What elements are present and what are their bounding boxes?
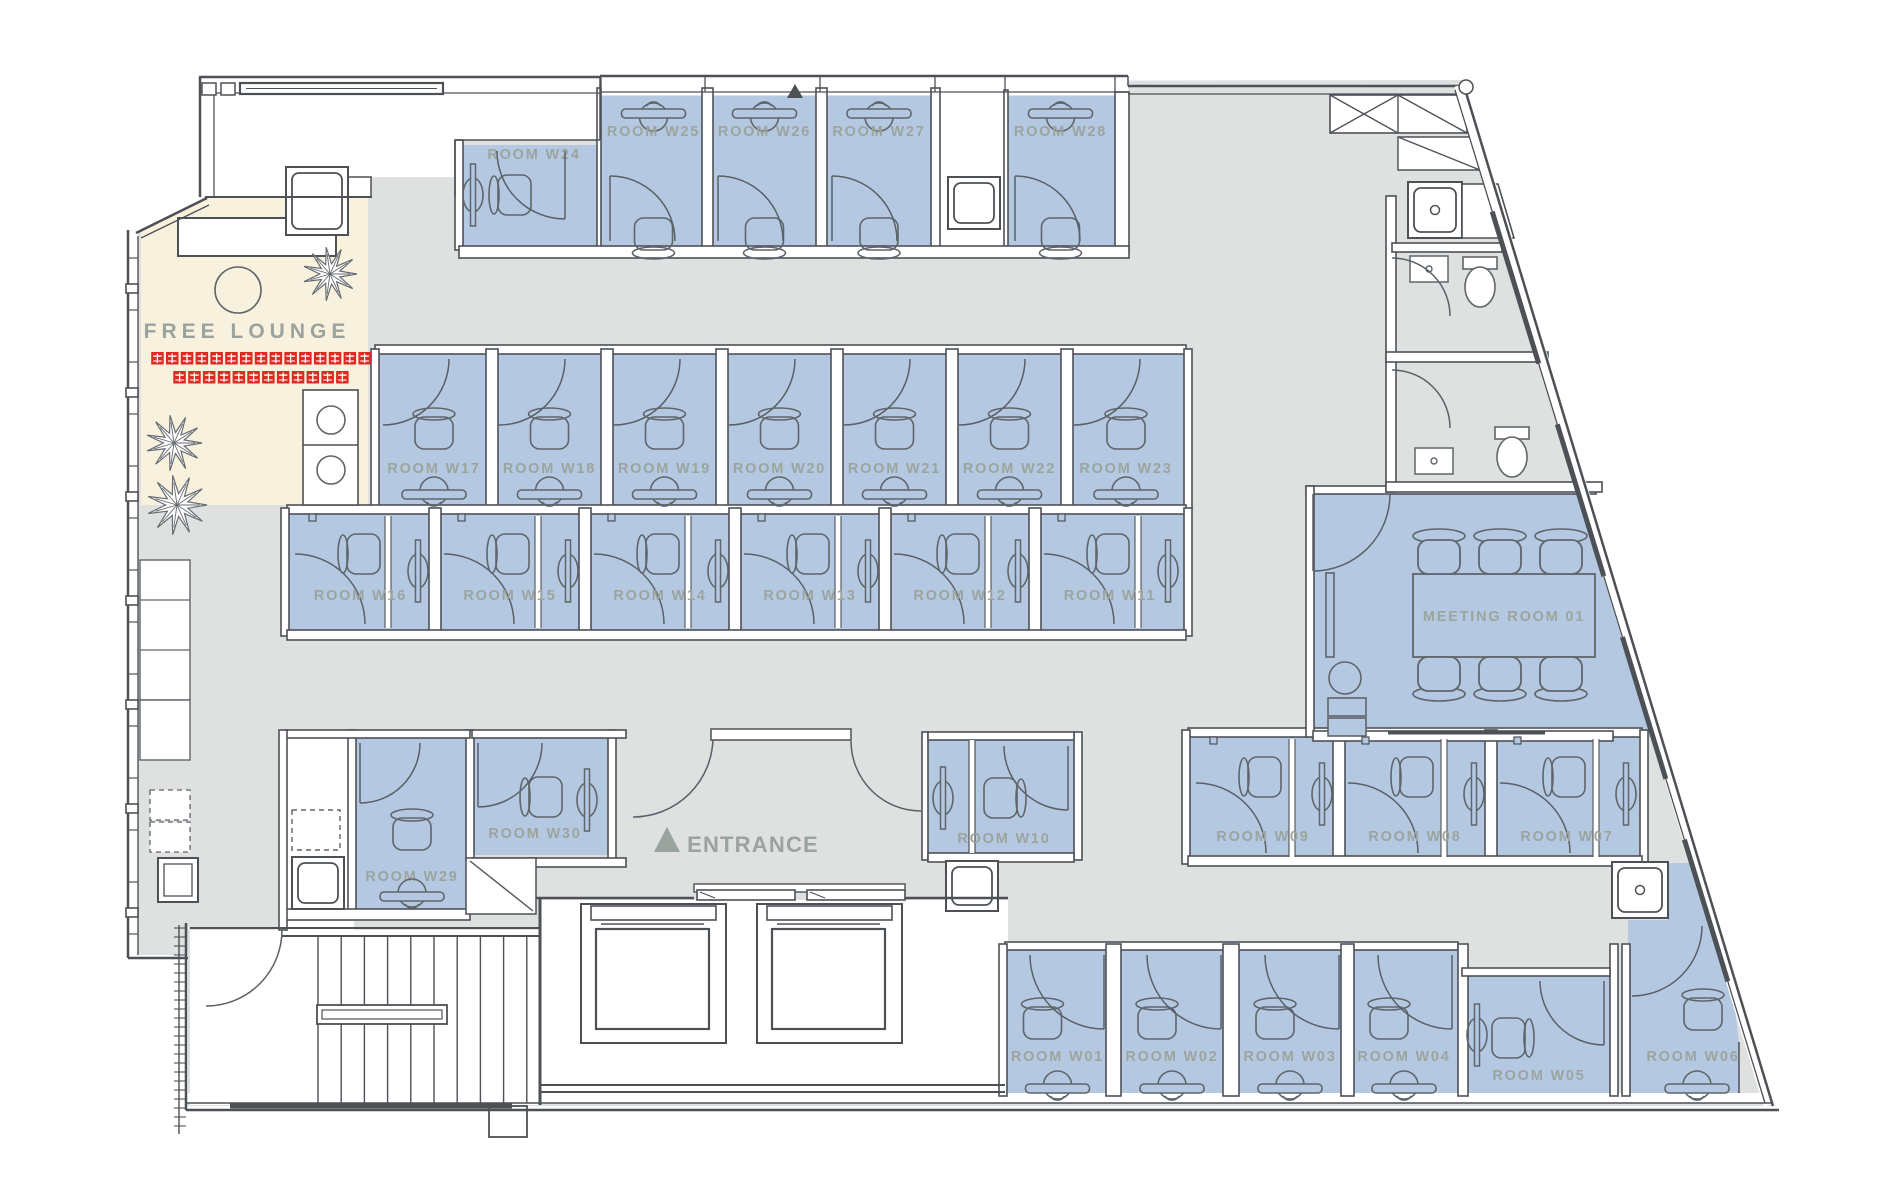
svg-text:ROOM W07: ROOM W07 [1520,829,1613,845]
svg-text:ROOM W04: ROOM W04 [1357,1049,1450,1065]
svg-text:ROOM W28: ROOM W28 [1014,124,1107,140]
svg-text:MEETING ROOM 01: MEETING ROOM 01 [1423,609,1585,625]
svg-text:ROOM W02: ROOM W02 [1125,1049,1218,1065]
svg-text:ROOM W25: ROOM W25 [607,124,700,140]
svg-text:ROOM W20: ROOM W20 [733,461,826,477]
svg-text:ROOM W17: ROOM W17 [387,461,480,477]
svg-text:ROOM W18: ROOM W18 [503,461,596,477]
svg-text:ROOM W13: ROOM W13 [763,588,856,604]
svg-text:ROOM W11: ROOM W11 [1064,588,1157,604]
svg-text:ROOM W09: ROOM W09 [1216,829,1309,845]
svg-text:ROOM W01: ROOM W01 [1011,1049,1104,1065]
svg-text:ROOM W23: ROOM W23 [1079,461,1172,477]
svg-text:ROOM W15: ROOM W15 [463,588,556,604]
svg-text:ROOM W08: ROOM W08 [1368,829,1461,845]
svg-text:ROOM W19: ROOM W19 [618,461,711,477]
svg-text:ROOM W22: ROOM W22 [963,461,1056,477]
svg-text:ROOM W14: ROOM W14 [613,588,706,604]
svg-text:ROOM W03: ROOM W03 [1243,1049,1336,1065]
svg-text:FREE LOUNGE: FREE LOUNGE [144,320,351,343]
svg-text:ROOM W30: ROOM W30 [488,826,581,842]
svg-text:ROOM W16: ROOM W16 [314,588,407,604]
svg-text:ROOM W12: ROOM W12 [913,588,1006,604]
svg-text:ROOM W26: ROOM W26 [718,124,811,140]
svg-text:ROOM W06: ROOM W06 [1646,1049,1739,1065]
svg-text:ENTRANCE: ENTRANCE [687,832,819,857]
svg-text:ROOM W27: ROOM W27 [832,124,925,140]
svg-text:ROOM W10: ROOM W10 [957,831,1050,847]
svg-text:ROOM W05: ROOM W05 [1492,1068,1585,1084]
svg-text:ROOM W24: ROOM W24 [487,147,580,163]
svg-text:ROOM W29: ROOM W29 [365,869,458,885]
svg-text:ROOM W21: ROOM W21 [848,461,941,477]
